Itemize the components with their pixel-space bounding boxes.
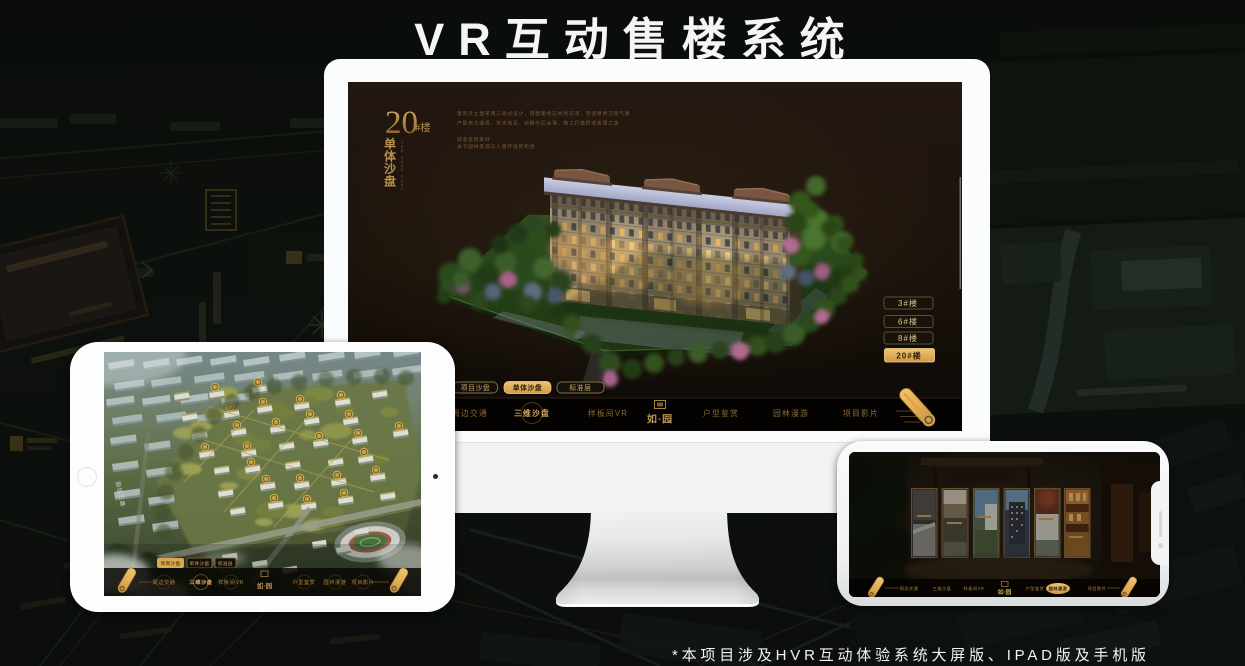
svg-text:项目沙盘: 项目沙盘 [461,383,491,392]
svg-text:园林漫游: 园林漫游 [773,408,809,418]
svg-text:样板间VR: 样板间VR [964,585,985,592]
svg-text:单体沙盘: 单体沙盘 [513,383,543,392]
svg-text:三维沙盘: 三维沙盘 [189,578,212,586]
svg-text:8#楼: 8#楼 [898,333,918,343]
svg-text:20: 20 [385,105,418,141]
svg-text:三维沙盘: 三维沙盘 [933,585,952,592]
svg-text:项目影片: 项目影片 [1088,585,1107,592]
svg-text:6#楼: 6#楼 [898,317,918,327]
svg-text:单体沙盘: 单体沙盘 [190,560,210,567]
svg-text:如·园: 如·园 [647,413,673,426]
svg-text:三维沙盘: 三维沙盘 [514,408,550,418]
svg-text:盘: 盘 [384,174,396,189]
svg-text:项目影片: 项目影片 [843,408,879,418]
svg-text:户型南北通透，采光充足，动静分区合理，精工打造舒适宜居之选: 户型南北通透，采光充足，动静分区合理，精工打造舒适宜居之选 [457,120,619,127]
svg-text:3#楼: 3#楼 [898,298,918,308]
svg-text:园林漫游: 园林漫游 [1049,585,1068,592]
svg-text:样板间VR: 样板间VR [218,578,244,586]
svg-text:如·园: 如·园 [998,588,1012,596]
svg-text:园林漫游: 园林漫游 [323,578,346,586]
svg-text:周边交通: 周边交通 [452,408,488,418]
svg-text:#楼: #楼 [415,121,431,134]
svg-text:样板间VR: 样板间VR [588,408,628,418]
svg-text:户型鉴赏: 户型鉴赏 [1026,585,1045,592]
svg-text:户型鉴赏: 户型鉴赏 [703,408,739,418]
svg-text:建筑外立面采用三段式设计，搭配暖色石材真石漆，营造尊贵沉稳气: 建筑外立面采用三段式设计，搭配暖色石材真石漆，营造尊贵沉稳气质 [457,110,631,117]
svg-text:L: L [401,187,403,191]
svg-text:标准层: 标准层 [569,383,591,392]
svg-text:标准层: 标准层 [218,560,233,567]
svg-text:诚意呈现美好: 诚意呈现美好 [457,136,491,143]
svg-text:项目沙盘: 项目沙盘 [161,560,181,567]
svg-text:项目影片: 项目影片 [351,578,374,586]
svg-text:周边交通: 周边交通 [900,585,919,592]
svg-text:关于园林景观与人居环境的构想: 关于园林景观与人居环境的构想 [457,143,535,150]
svg-text:户型鉴赏: 户型鉴赏 [292,578,315,586]
svg-text:20#楼: 20#楼 [896,351,921,361]
svg-text:如·园: 如·园 [257,581,273,590]
